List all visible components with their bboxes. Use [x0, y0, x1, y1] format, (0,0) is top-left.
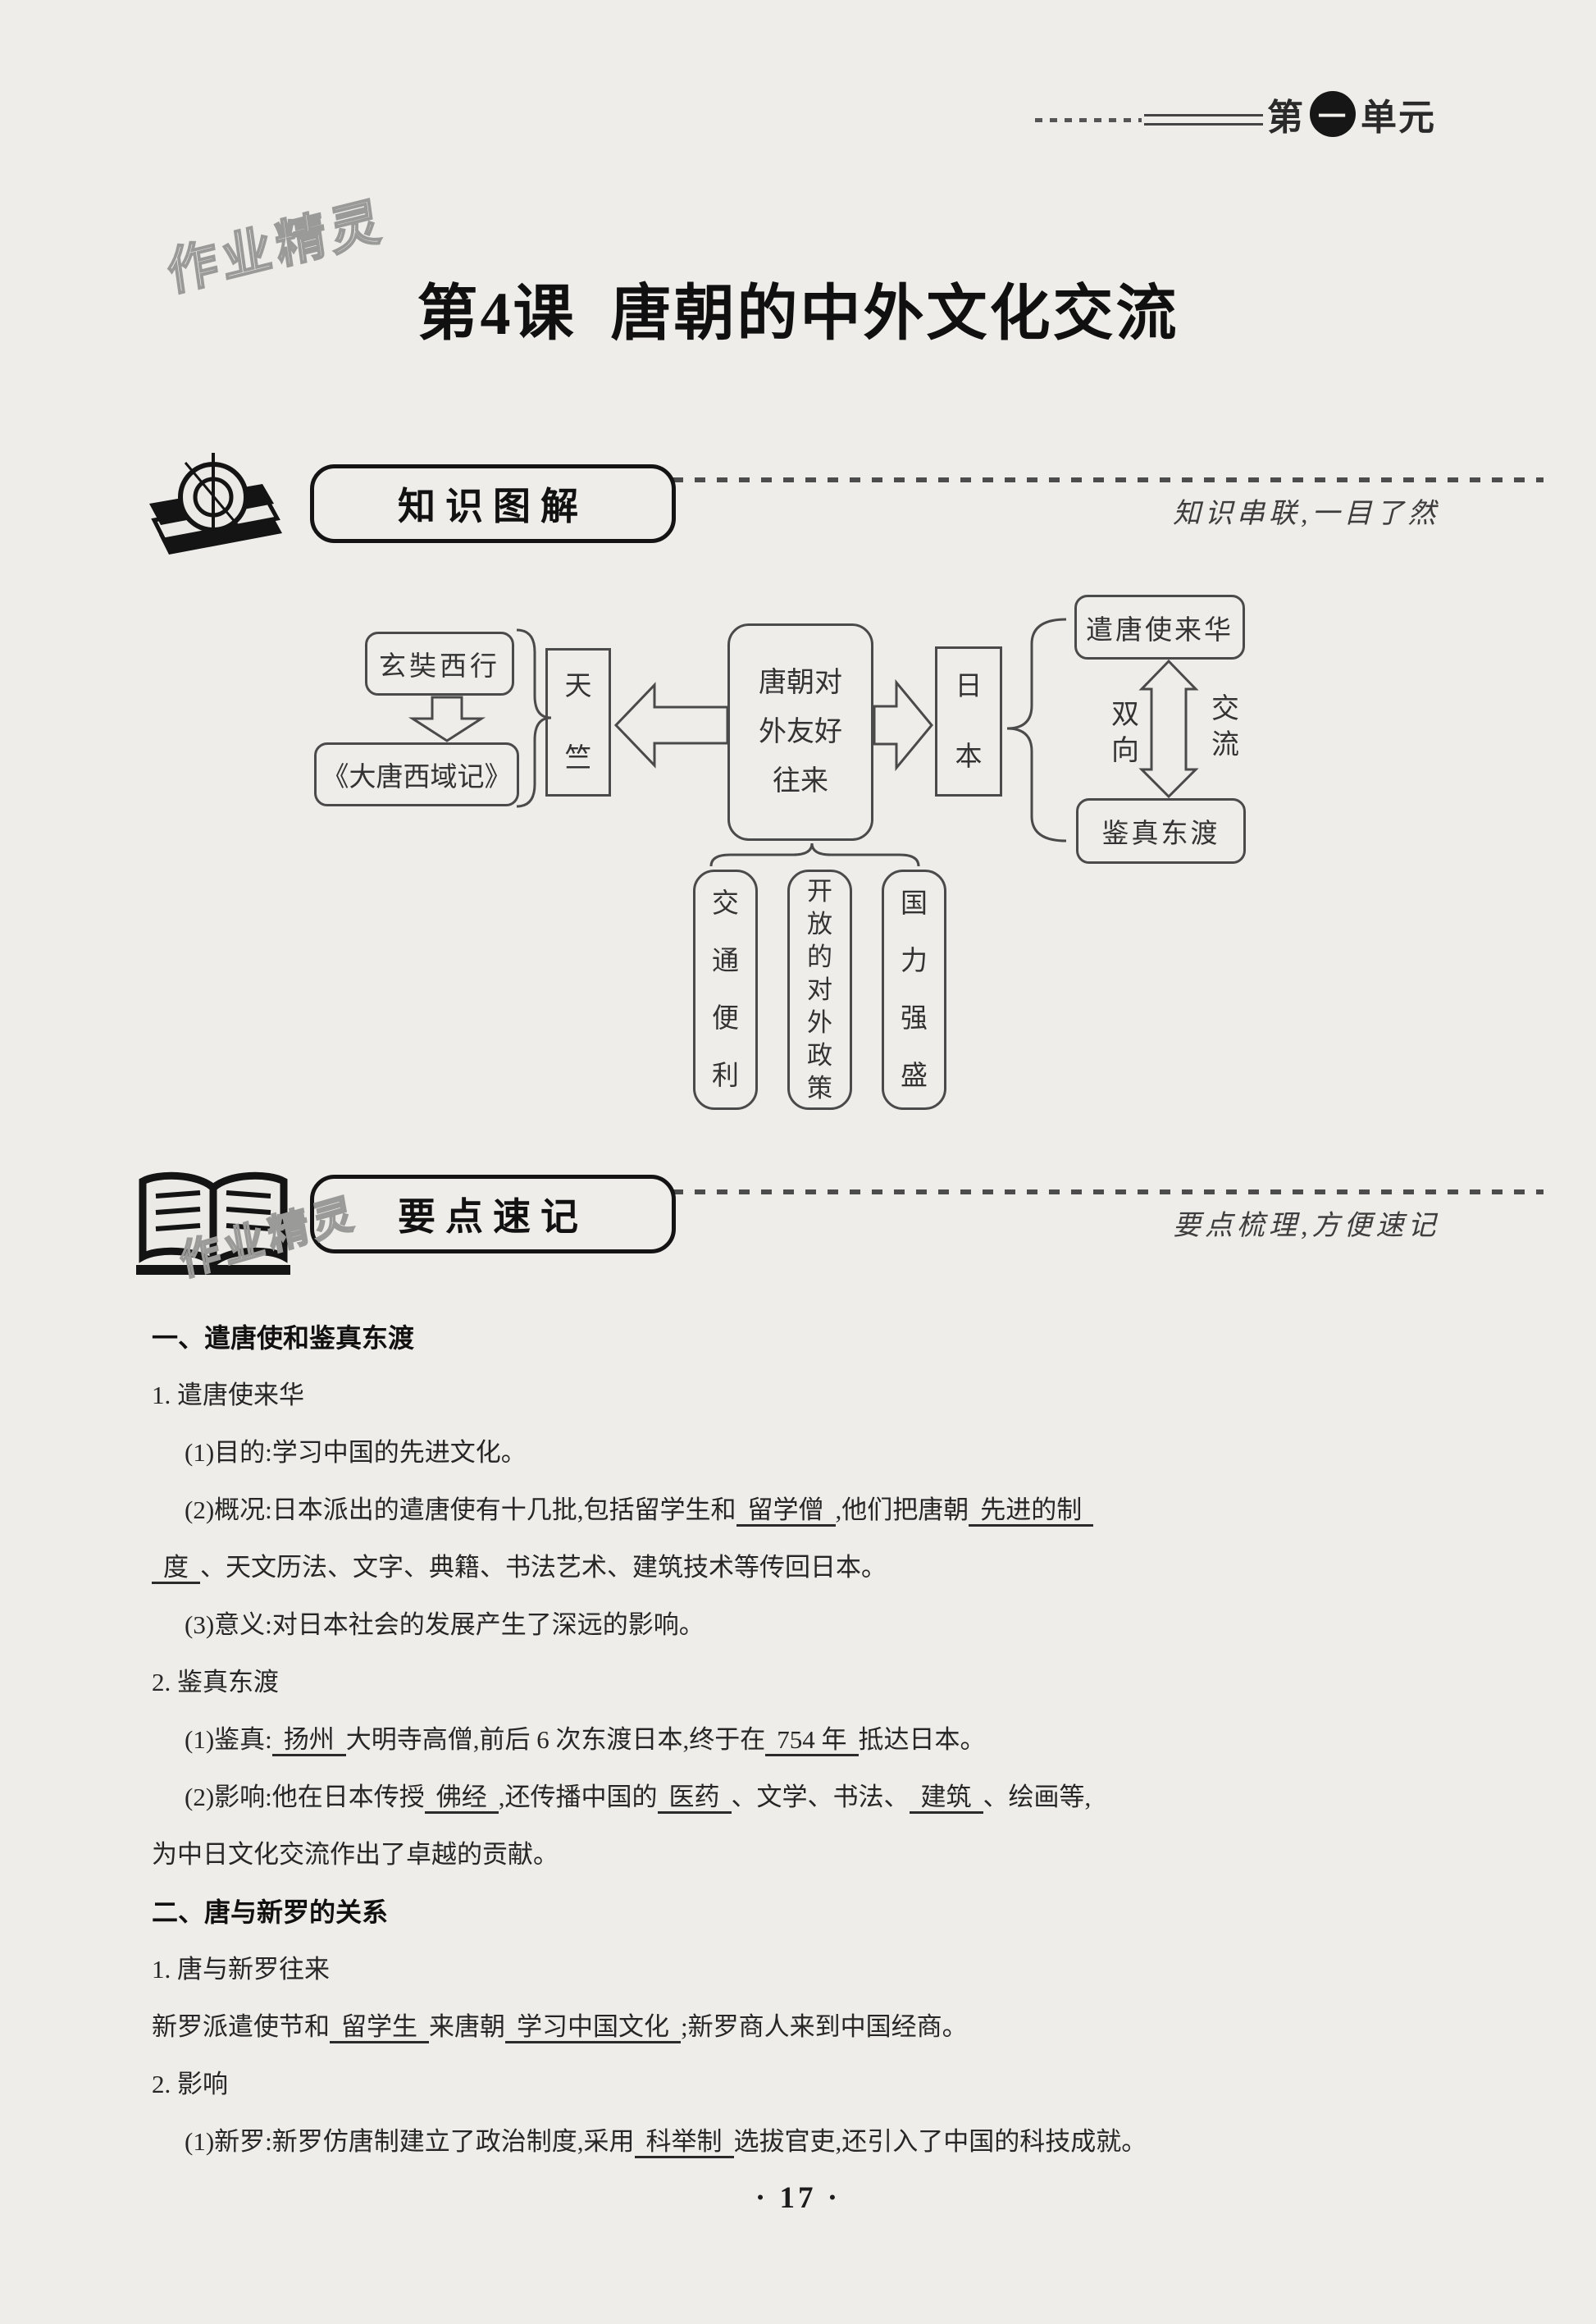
- diagram-box-national-strength: 国力强盛: [882, 870, 946, 1110]
- open-book-icon: [125, 1165, 305, 1292]
- diagram-label-bidirectional: 双向: [1110, 697, 1140, 769]
- diagram-box-japan-label: 日本: [952, 651, 985, 792]
- lesson-number: 第4课: [417, 281, 577, 348]
- diagram-box-tianzhu-label: 天竺: [562, 651, 595, 795]
- section-badge-knowledge-diagram: 知识图解: [310, 464, 676, 543]
- note-line: (1)目的:学习中国的先进文化。: [152, 1424, 1513, 1482]
- diagram-box-jianzhen-voyage: 鉴真东渡: [1076, 798, 1246, 864]
- note-text: 二、唐与新罗的关系: [152, 1897, 388, 1927]
- note-text: (1)新罗:新罗仿唐制建立了政治制度,采用: [185, 2127, 635, 2156]
- diagram-box-b1-label: 交通便利: [709, 875, 742, 1105]
- fill-blank-answer: 先进的制: [969, 1495, 1093, 1527]
- diagram-box-open-policy: 开放的对外政策: [787, 870, 852, 1110]
- unit-suffix: 单元: [1361, 88, 1436, 140]
- note-line: 1. 遣唐使来华: [152, 1367, 1513, 1424]
- header-double-rule: [1144, 114, 1263, 126]
- diagram-box-japan: 日本: [935, 646, 1002, 797]
- diagram-label-exchange: 交流: [1211, 692, 1240, 764]
- note-line: (2)概况:日本派出的遣唐使有十几批,包括留学生和留学僧,他们把唐朝先进的制: [152, 1482, 1513, 1539]
- note-line: 新罗派遣使节和留学生来唐朝学习中国文化;新罗商人来到中国经商。: [152, 1998, 1513, 2056]
- diagram-box-xuanzang: 玄奘西行: [365, 632, 514, 696]
- note-text: 1. 唐与新罗往来: [152, 1955, 330, 1984]
- notes: 一、遣唐使和鉴真东渡1. 遣唐使来华(1)目的:学习中国的先进文化。(2)概况:…: [152, 1309, 1513, 2171]
- note-text: 选拔官吏,还引入了中国的科技成就。: [734, 2127, 1147, 2156]
- brace-up: [711, 843, 919, 866]
- unit-badge: 第 一 单元: [1267, 89, 1436, 139]
- note-text: 1. 遣唐使来华: [152, 1381, 304, 1409]
- page-title: 第4课唐朝的中外文化交流: [0, 264, 1596, 352]
- section-tagline: 知识串联,一目了然: [1173, 491, 1440, 531]
- down-arrow-icon: [413, 697, 481, 741]
- note-text: 抵达日本。: [859, 1725, 986, 1754]
- brace-left: [1007, 619, 1066, 841]
- note-line: 为中日文化交流作出了卓越的贡献。: [152, 1826, 1513, 1883]
- fill-blank-answer: 佛经: [425, 1783, 499, 1814]
- note-text: 一、遣唐使和鉴真东渡: [152, 1323, 414, 1353]
- note-text: 2. 影响: [152, 2070, 228, 2098]
- note-text: 来唐朝: [429, 2012, 505, 2041]
- note-text: ;新罗商人来到中国经商。: [681, 2012, 968, 2041]
- note-text: 、文学、书法、: [732, 1783, 910, 1811]
- note-text: 2. 鉴真东渡: [152, 1668, 279, 1696]
- note-line: 二、唐与新罗的关系: [152, 1883, 1513, 1941]
- diagram-box-b2-label: 开放的对外政策: [804, 875, 837, 1105]
- fill-blank-answer: 754 年: [765, 1725, 858, 1756]
- diagram-box-tang-foreign-relations: 唐朝对外友好往来: [727, 623, 873, 841]
- header-dotted-rule: [1035, 118, 1142, 122]
- diagram-box-b3-label: 国力强盛: [898, 875, 931, 1105]
- diagram-box-convenient-transport: 交通便利: [693, 870, 758, 1110]
- note-line: 一、遣唐使和鉴真东渡: [152, 1309, 1513, 1367]
- fill-blank-answer: 建筑: [910, 1783, 983, 1814]
- note-text: (1)目的:学习中国的先进文化。: [185, 1438, 527, 1467]
- fill-blank-answer: 学习中国文化: [505, 2012, 681, 2043]
- note-line: (3)意义:对日本社会的发展产生了深远的影响。: [152, 1596, 1513, 1654]
- fill-blank-answer: 留学僧: [736, 1495, 836, 1527]
- section-badge-key-points: 要点速记: [310, 1175, 676, 1253]
- note-text: 大明寺高僧,前后 6 次东渡日本,终于在: [346, 1725, 766, 1754]
- fill-blank-answer: 留学生: [330, 2012, 429, 2043]
- note-line: (1)鉴真:扬州大明寺高僧,前后 6 次东渡日本,终于在754 年抵达日本。: [152, 1711, 1513, 1769]
- note-line: (2)影响:他在日本传授佛经,还传播中国的医药、文学、书法、建筑、绘画等,: [152, 1769, 1513, 1826]
- diagram-box-tianzhu: 天竺: [545, 648, 611, 797]
- note-line: 2. 影响: [152, 2056, 1513, 2113]
- page-number: · 17 ·: [0, 2180, 1596, 2216]
- note-line: 度、天文历法、文字、典籍、书法艺术、建筑技术等传回日本。: [152, 1539, 1513, 1596]
- section-tagline: 要点梳理,方便速记: [1173, 1203, 1440, 1243]
- note-text: (2)影响:他在日本传授: [185, 1783, 425, 1811]
- note-line: 2. 鉴真东渡: [152, 1654, 1513, 1711]
- fill-blank-answer: 医药: [658, 1783, 732, 1814]
- workbook-page: 第 一 单元 作业精灵 作业精灵 第4课唐朝的中外文化交流 知识图解 知识串联,…: [0, 0, 1596, 2324]
- lesson-name: 唐朝的中外文化交流: [611, 281, 1179, 348]
- fill-blank-answer: 科举制: [635, 2127, 734, 2158]
- note-text: ,还传播中国的: [499, 1783, 658, 1811]
- double-arrow-icon: [1142, 661, 1196, 797]
- note-text: 新罗派遣使节和: [152, 2012, 330, 2041]
- note-text: 、绘画等,: [983, 1783, 1092, 1811]
- section-dotted-rule: [673, 477, 1544, 482]
- unit-number-circle: 一: [1310, 91, 1356, 137]
- note-text: (3)意义:对日本社会的发展产生了深远的影响。: [185, 1610, 705, 1639]
- diagram-box-datang-xiyuji: 《大唐西域记》: [314, 742, 519, 806]
- note-line: (1)新罗:新罗仿唐制建立了政治制度,采用科举制选拔官吏,还引入了中国的科技成就…: [152, 2113, 1513, 2171]
- section-dotted-rule: [673, 1189, 1544, 1194]
- note-line: 1. 唐与新罗往来: [152, 1941, 1513, 1998]
- note-text: ,他们把唐朝: [836, 1495, 969, 1524]
- diagram-box-envoys-to-china: 遣唐使来华: [1074, 595, 1245, 660]
- right-arrow-icon: [874, 683, 932, 768]
- diagram-box-center-label: 唐朝对外友好往来: [755, 659, 846, 806]
- left-arrow-icon: [616, 685, 727, 765]
- unit-prefix: 第: [1267, 88, 1305, 140]
- fill-blank-answer: 扬州: [272, 1725, 346, 1756]
- fill-blank-answer: 度: [152, 1553, 200, 1584]
- note-text: 、天文历法、文字、典籍、书法艺术、建筑技术等传回日本。: [200, 1553, 887, 1582]
- books-target-icon: [131, 450, 324, 585]
- note-text: (1)鉴真:: [185, 1725, 272, 1754]
- note-text: 为中日文化交流作出了卓越的贡献。: [152, 1840, 559, 1869]
- note-text: (2)概况:日本派出的遣唐使有十几批,包括留学生和: [185, 1495, 736, 1524]
